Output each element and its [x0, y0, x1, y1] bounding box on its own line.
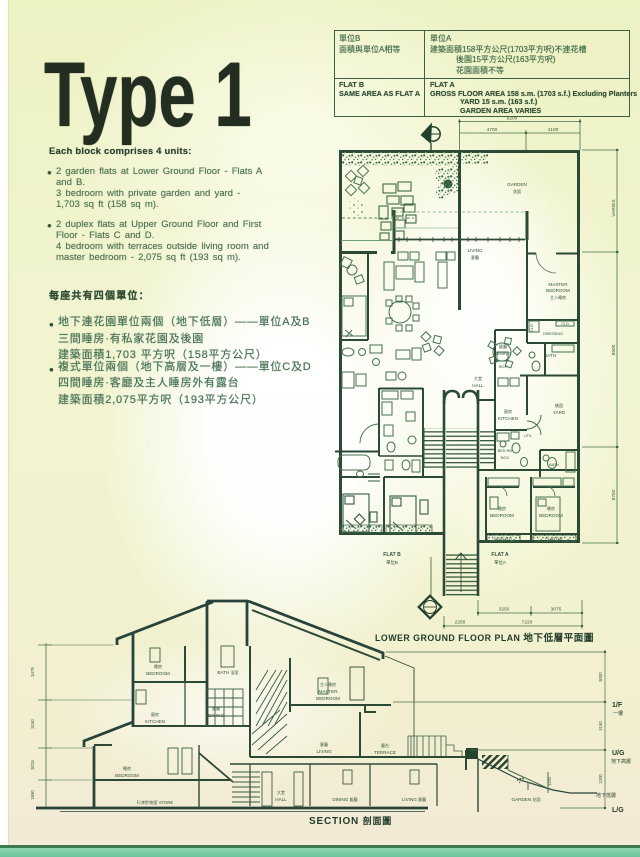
svg-text:廚房: 廚房 — [504, 408, 512, 414]
svg-text:飯廳: 飯廳 — [499, 343, 507, 349]
svg-text:BEDROOM: BEDROOM — [546, 288, 570, 293]
svg-text:後園: 後園 — [555, 402, 563, 408]
svg-text:KITCHEN: KITCHEN — [145, 719, 165, 724]
svg-text:廚房: 廚房 — [151, 711, 159, 717]
svg-text:LIVING: LIVING — [467, 248, 482, 253]
svg-text:露台: 露台 — [381, 742, 389, 748]
svg-text:4700: 4700 — [487, 127, 498, 133]
svg-text:3475: 3475 — [30, 667, 35, 677]
svg-text:BEDROOM: BEDROOM — [115, 773, 139, 778]
svg-text:BEDROOM: BEDROOM — [316, 696, 340, 701]
svg-text:睡房: 睡房 — [154, 663, 162, 669]
svg-text:3150: 3150 — [598, 721, 603, 731]
svg-text:花園: 花園 — [513, 188, 521, 194]
svg-text:大堂: 大堂 — [474, 375, 482, 381]
svg-text:PLANTER: PLANTER — [545, 537, 563, 541]
svg-text:FLAT B: FLAT B — [383, 552, 401, 558]
svg-text:地下高層: 地下高層 — [611, 758, 631, 765]
svg-text:BATH: BATH — [544, 353, 556, 358]
svg-text:TERRACE: TERRACE — [374, 750, 396, 755]
svg-text:睡房: 睡房 — [547, 505, 555, 511]
svg-text:BOX: BOX — [501, 456, 509, 460]
svg-text:主人睡房: 主人睡房 — [320, 681, 336, 687]
svg-text:MASTER: MASTER — [318, 689, 338, 694]
svg-text:3025: 3025 — [30, 760, 35, 770]
svg-text:睡房: 睡房 — [498, 505, 506, 511]
svg-text:3150: 3150 — [30, 719, 35, 729]
svg-text:地下低層: 地下低層 — [596, 792, 616, 799]
svg-text:DRESSING: DRESSING — [543, 332, 563, 336]
svg-text:VARIES: VARIES — [611, 199, 617, 216]
svg-text:BATH 浴室: BATH 浴室 — [217, 669, 238, 675]
svg-text:9200: 9200 — [507, 116, 518, 122]
svg-text:CLO: CLO — [530, 324, 534, 332]
svg-text:BEDROOM: BEDROOM — [539, 513, 563, 518]
svg-text:飯廳: 飯廳 — [212, 705, 220, 711]
svg-text:HALL: HALL — [472, 383, 484, 388]
svg-text:MASTER: MASTER — [548, 282, 568, 287]
svg-text:1/F: 1/F — [612, 702, 623, 709]
svg-text:1850: 1850 — [30, 790, 35, 800]
svg-text:BEDROOM: BEDROOM — [146, 671, 170, 676]
svg-text:CLO: CLO — [561, 322, 569, 326]
svg-text:1200: 1200 — [598, 774, 603, 784]
svg-text:BEDROOM: BEDROOM — [490, 513, 514, 518]
svg-text:客廳: 客廳 — [471, 254, 479, 260]
svg-text:GARDEN 花園: GARDEN 花園 — [512, 796, 541, 802]
svg-text:DINING 飯廳: DINING 飯廳 — [332, 796, 357, 802]
svg-text:BOX: BOX — [499, 365, 507, 369]
svg-text:睡房: 睡房 — [123, 765, 131, 771]
svg-text:U/G: U/G — [612, 750, 625, 757]
svg-text:DINING: DINING — [495, 351, 512, 356]
svg-text:一樓: 一樓 — [613, 710, 623, 717]
svg-text:3075: 3075 — [551, 607, 562, 613]
svg-text:GARDEN: GARDEN — [507, 182, 527, 187]
svg-text:PLANTER: PLANTER — [494, 537, 512, 541]
svg-text:7220: 7220 — [522, 620, 533, 626]
svg-text:3000: 3000 — [598, 672, 603, 682]
svg-text:L/G: L/G — [612, 807, 624, 814]
svg-text:行李貯物室 STORE: 行李貯物室 STORE — [137, 799, 174, 806]
svg-text:LIVING: LIVING — [316, 749, 331, 754]
svg-text:4100: 4100 — [548, 127, 559, 133]
svg-text:YARD: YARD — [553, 410, 566, 415]
svg-text:UTIL: UTIL — [524, 434, 532, 438]
svg-text:8900: 8900 — [611, 344, 617, 355]
svg-text:3250: 3250 — [499, 607, 510, 613]
svg-text:FLAT A: FLAT A — [491, 552, 509, 558]
svg-text:HALL: HALL — [275, 797, 287, 802]
svg-text:1200: 1200 — [547, 776, 552, 786]
svg-text:單位B: 單位B — [386, 559, 398, 565]
svg-text:8750: 8750 — [611, 489, 617, 500]
svg-text:主人睡房: 主人睡房 — [550, 294, 566, 300]
svg-text:BED RM: BED RM — [498, 449, 513, 453]
svg-text:BATH: BATH — [549, 463, 559, 467]
svg-text:LIVING 客廳: LIVING 客廳 — [402, 796, 426, 802]
svg-text:KITCHEN: KITCHEN — [498, 416, 518, 421]
svg-text:2250: 2250 — [455, 620, 466, 626]
svg-text:單位A: 單位A — [494, 559, 506, 565]
svg-text:客廳: 客廳 — [320, 741, 328, 747]
svg-text:大堂: 大堂 — [277, 789, 285, 795]
svg-text:DINING: DINING — [208, 713, 225, 718]
